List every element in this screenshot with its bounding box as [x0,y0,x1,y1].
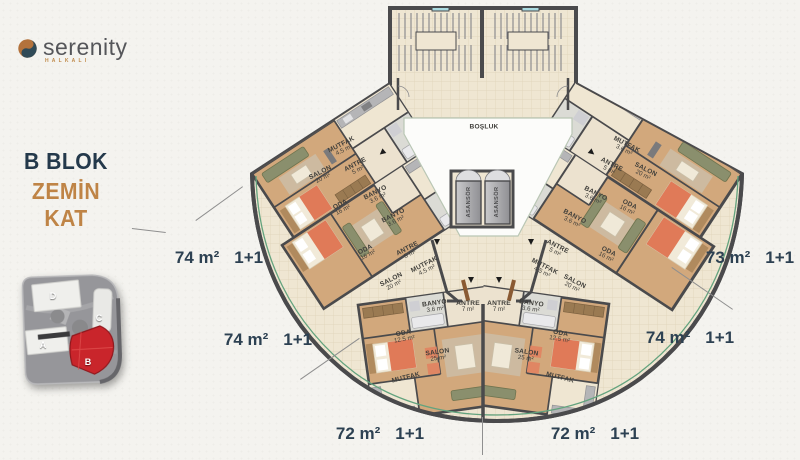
unit-area-label: 74 m²1+1 [646,328,734,348]
entry-arrow-icon [528,239,534,245]
floorplan-drawing [0,0,800,460]
unit-area-label: 72 m²1+1 [336,424,424,444]
site-block-label-a: A [40,340,47,350]
site-block-label-b: B [85,357,92,367]
unit-area-label: 74 m²1+1 [224,330,312,350]
room-label-boşluk: BOŞLUK [469,123,498,130]
unit-area-label: 72 m²1+1 [551,424,639,444]
room-label-asansör: ASANSÖR [466,187,472,218]
floorplan-page: serenity HALKALI B BLOK ZEMİN KAT [0,0,800,460]
room-label-asansör: ASANSÖR [494,187,500,218]
entry-arrow-icon [496,277,502,283]
site-block-label-d: D [50,291,57,301]
elevators [451,170,513,227]
room-label-antre: ANTRE7 m² [456,300,480,314]
unit-area-label: 74 m²1+1 [175,248,263,268]
entry-arrow-icon [468,277,474,283]
entry-arrow-icon [434,239,440,245]
site-block-label-c: C [96,313,103,323]
room-label-antre: ANTRE7 m² [487,300,511,314]
leader-line [482,417,483,455]
unit-area-label: 73 m²1+1 [706,248,794,268]
